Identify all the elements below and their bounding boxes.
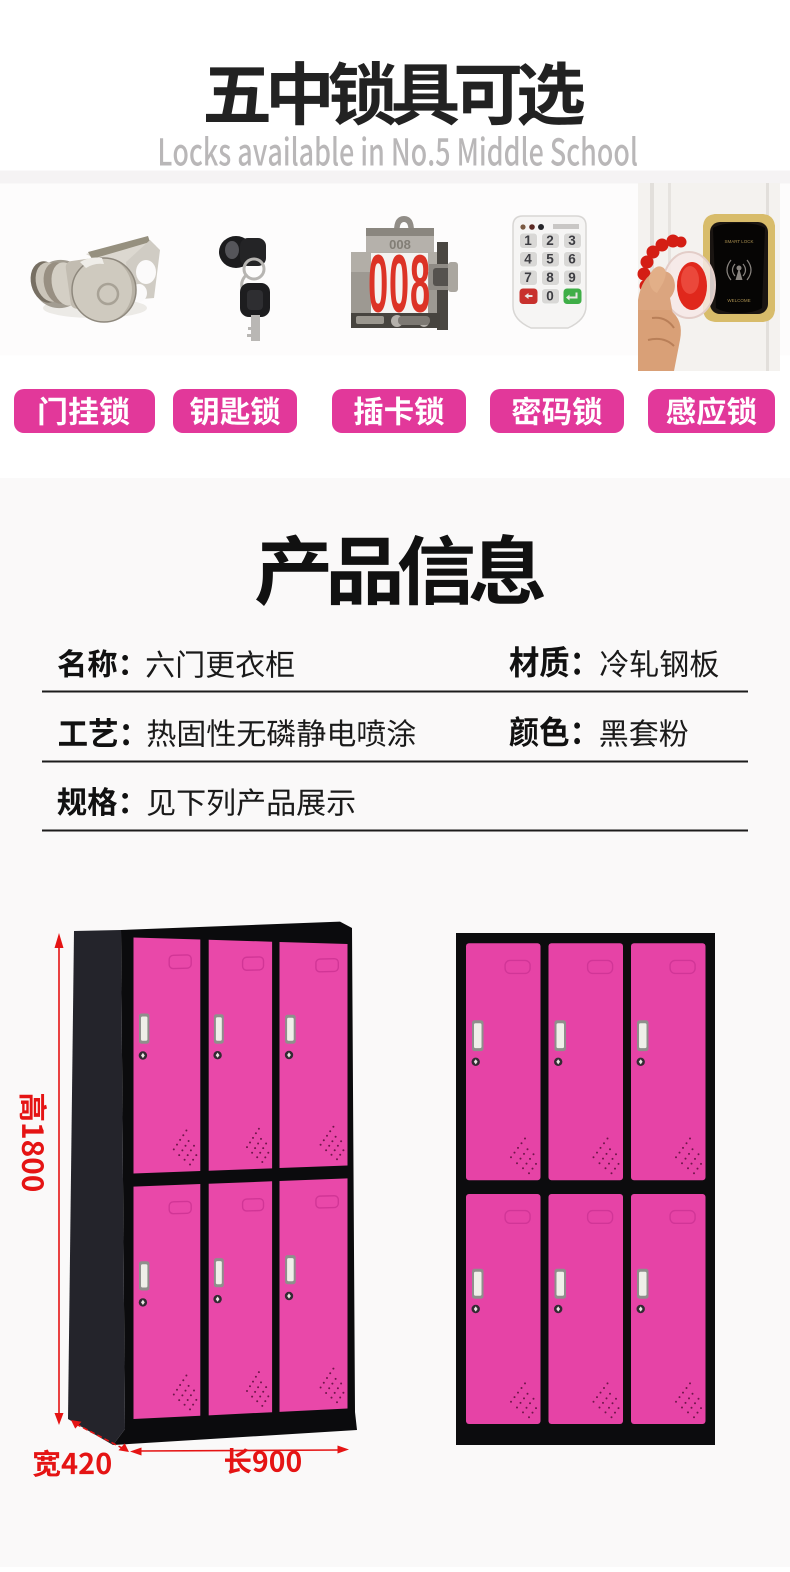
- svg-text:5: 5: [546, 252, 554, 267]
- svg-text:2: 2: [546, 233, 554, 248]
- svg-text:3: 3: [568, 233, 576, 248]
- svg-text:4: 4: [524, 252, 532, 267]
- svg-text:WELCOME: WELCOME: [727, 298, 750, 303]
- svg-text:8: 8: [546, 270, 554, 285]
- svg-text:9: 9: [568, 270, 576, 285]
- svg-text:7: 7: [524, 270, 532, 285]
- svg-text:0: 0: [546, 289, 554, 304]
- svg-text:6: 6: [568, 252, 576, 267]
- svg-text:SMART LOCK: SMART LOCK: [724, 239, 753, 244]
- svg-text:1: 1: [524, 233, 532, 248]
